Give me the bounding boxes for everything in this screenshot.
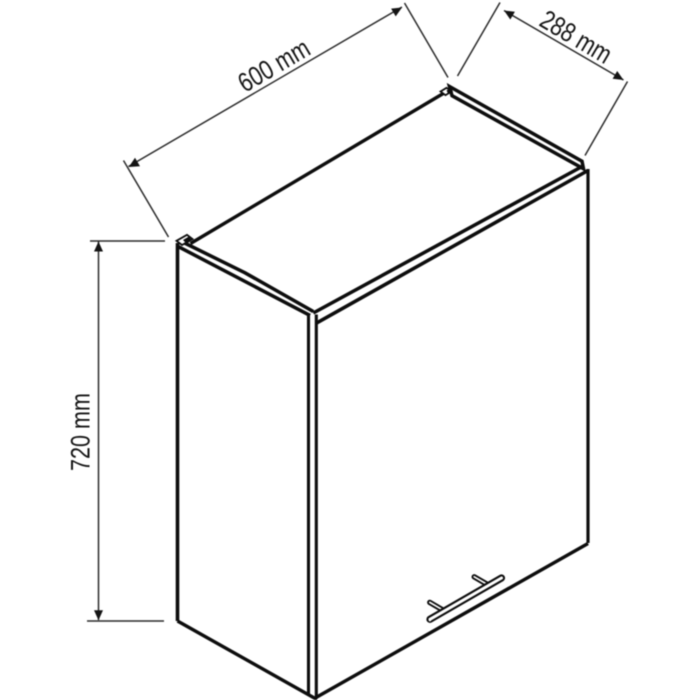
svg-text:720 mm: 720 mm xyxy=(66,393,96,471)
